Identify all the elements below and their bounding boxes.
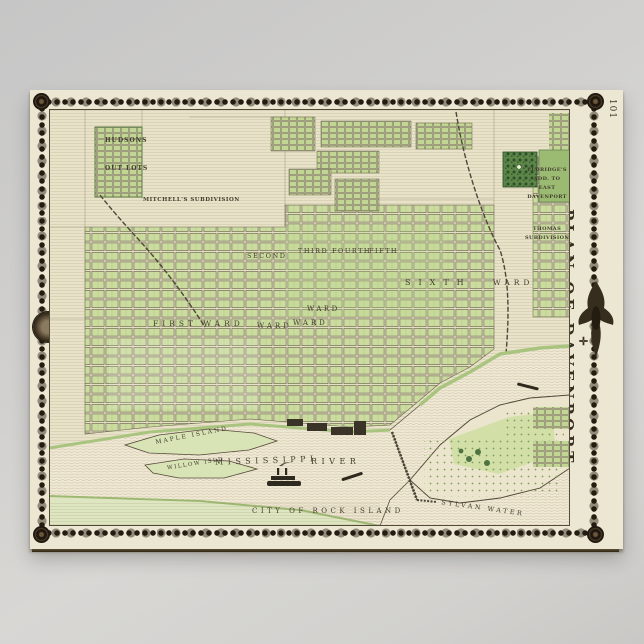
map-body: HUDSONS OUT LOTS MITCHELL'S SUBDIVISION … [49, 109, 570, 526]
label-sixth-ward: SIXTH [405, 279, 472, 287]
island-town-blocks [533, 441, 570, 467]
label-mitchells-subdivision: MITCHELL'S SUBDIVISION [143, 198, 240, 204]
title-cross-ornament-icon: ✛ [577, 335, 590, 348]
label-out-lots: OUT LOTS [105, 166, 148, 172]
label-ward: WARD [493, 279, 533, 287]
label-fourth-ward: FOURTH [332, 248, 371, 255]
label-thomas-subdivision: THOMAS SUBDIVISION [525, 225, 569, 243]
label-ward: WARD [307, 306, 340, 313]
atlas-page-number: 101 [607, 99, 617, 119]
label-line: DAVENPORT [525, 193, 569, 202]
product-photo-background: ✛ PLAN OF DAVENPORT, SCOTT COUNTY. ✛ 101 [0, 0, 644, 644]
label-river: RIVER [311, 458, 360, 466]
label-hudsons: HUDSONS [105, 138, 147, 144]
cemetery-chapel-icon [517, 165, 521, 169]
label-fifth-ward: FIFTH [369, 248, 398, 255]
label-ward: WARD [257, 323, 292, 330]
island-town-blocks [533, 407, 570, 429]
corner-rosette-icon [33, 93, 50, 110]
map-poster: ✛ PLAN OF DAVENPORT, SCOTT COUNTY. ✛ 101 [30, 90, 623, 549]
label-ward: WARD [293, 320, 328, 327]
label-first-ward: FIRST WARD [153, 320, 244, 328]
label-city-of-rock-island: CITY OF ROCK ISLAND [252, 508, 404, 515]
grid-tint [109, 339, 259, 409]
label-eldridges-addition: ELDRIDGE'S ADD. TO EAST DAVENPORT [525, 166, 569, 202]
corner-rosette-icon [33, 526, 50, 543]
label-line: ELDRIDGE'S [525, 166, 569, 175]
label-line: EAST [525, 184, 569, 193]
corner-rosette-icon [587, 93, 604, 110]
label-line: SUBDIVISION [525, 234, 569, 243]
label-second-ward: SECOND [247, 253, 286, 260]
label-line: THOMAS [525, 225, 569, 234]
chain-border-top [37, 97, 600, 108]
label-third-ward: THIRD [298, 248, 328, 255]
chain-border-bottom [37, 528, 600, 539]
label-line: ADD. TO [525, 175, 569, 184]
grid-tint [285, 227, 445, 317]
